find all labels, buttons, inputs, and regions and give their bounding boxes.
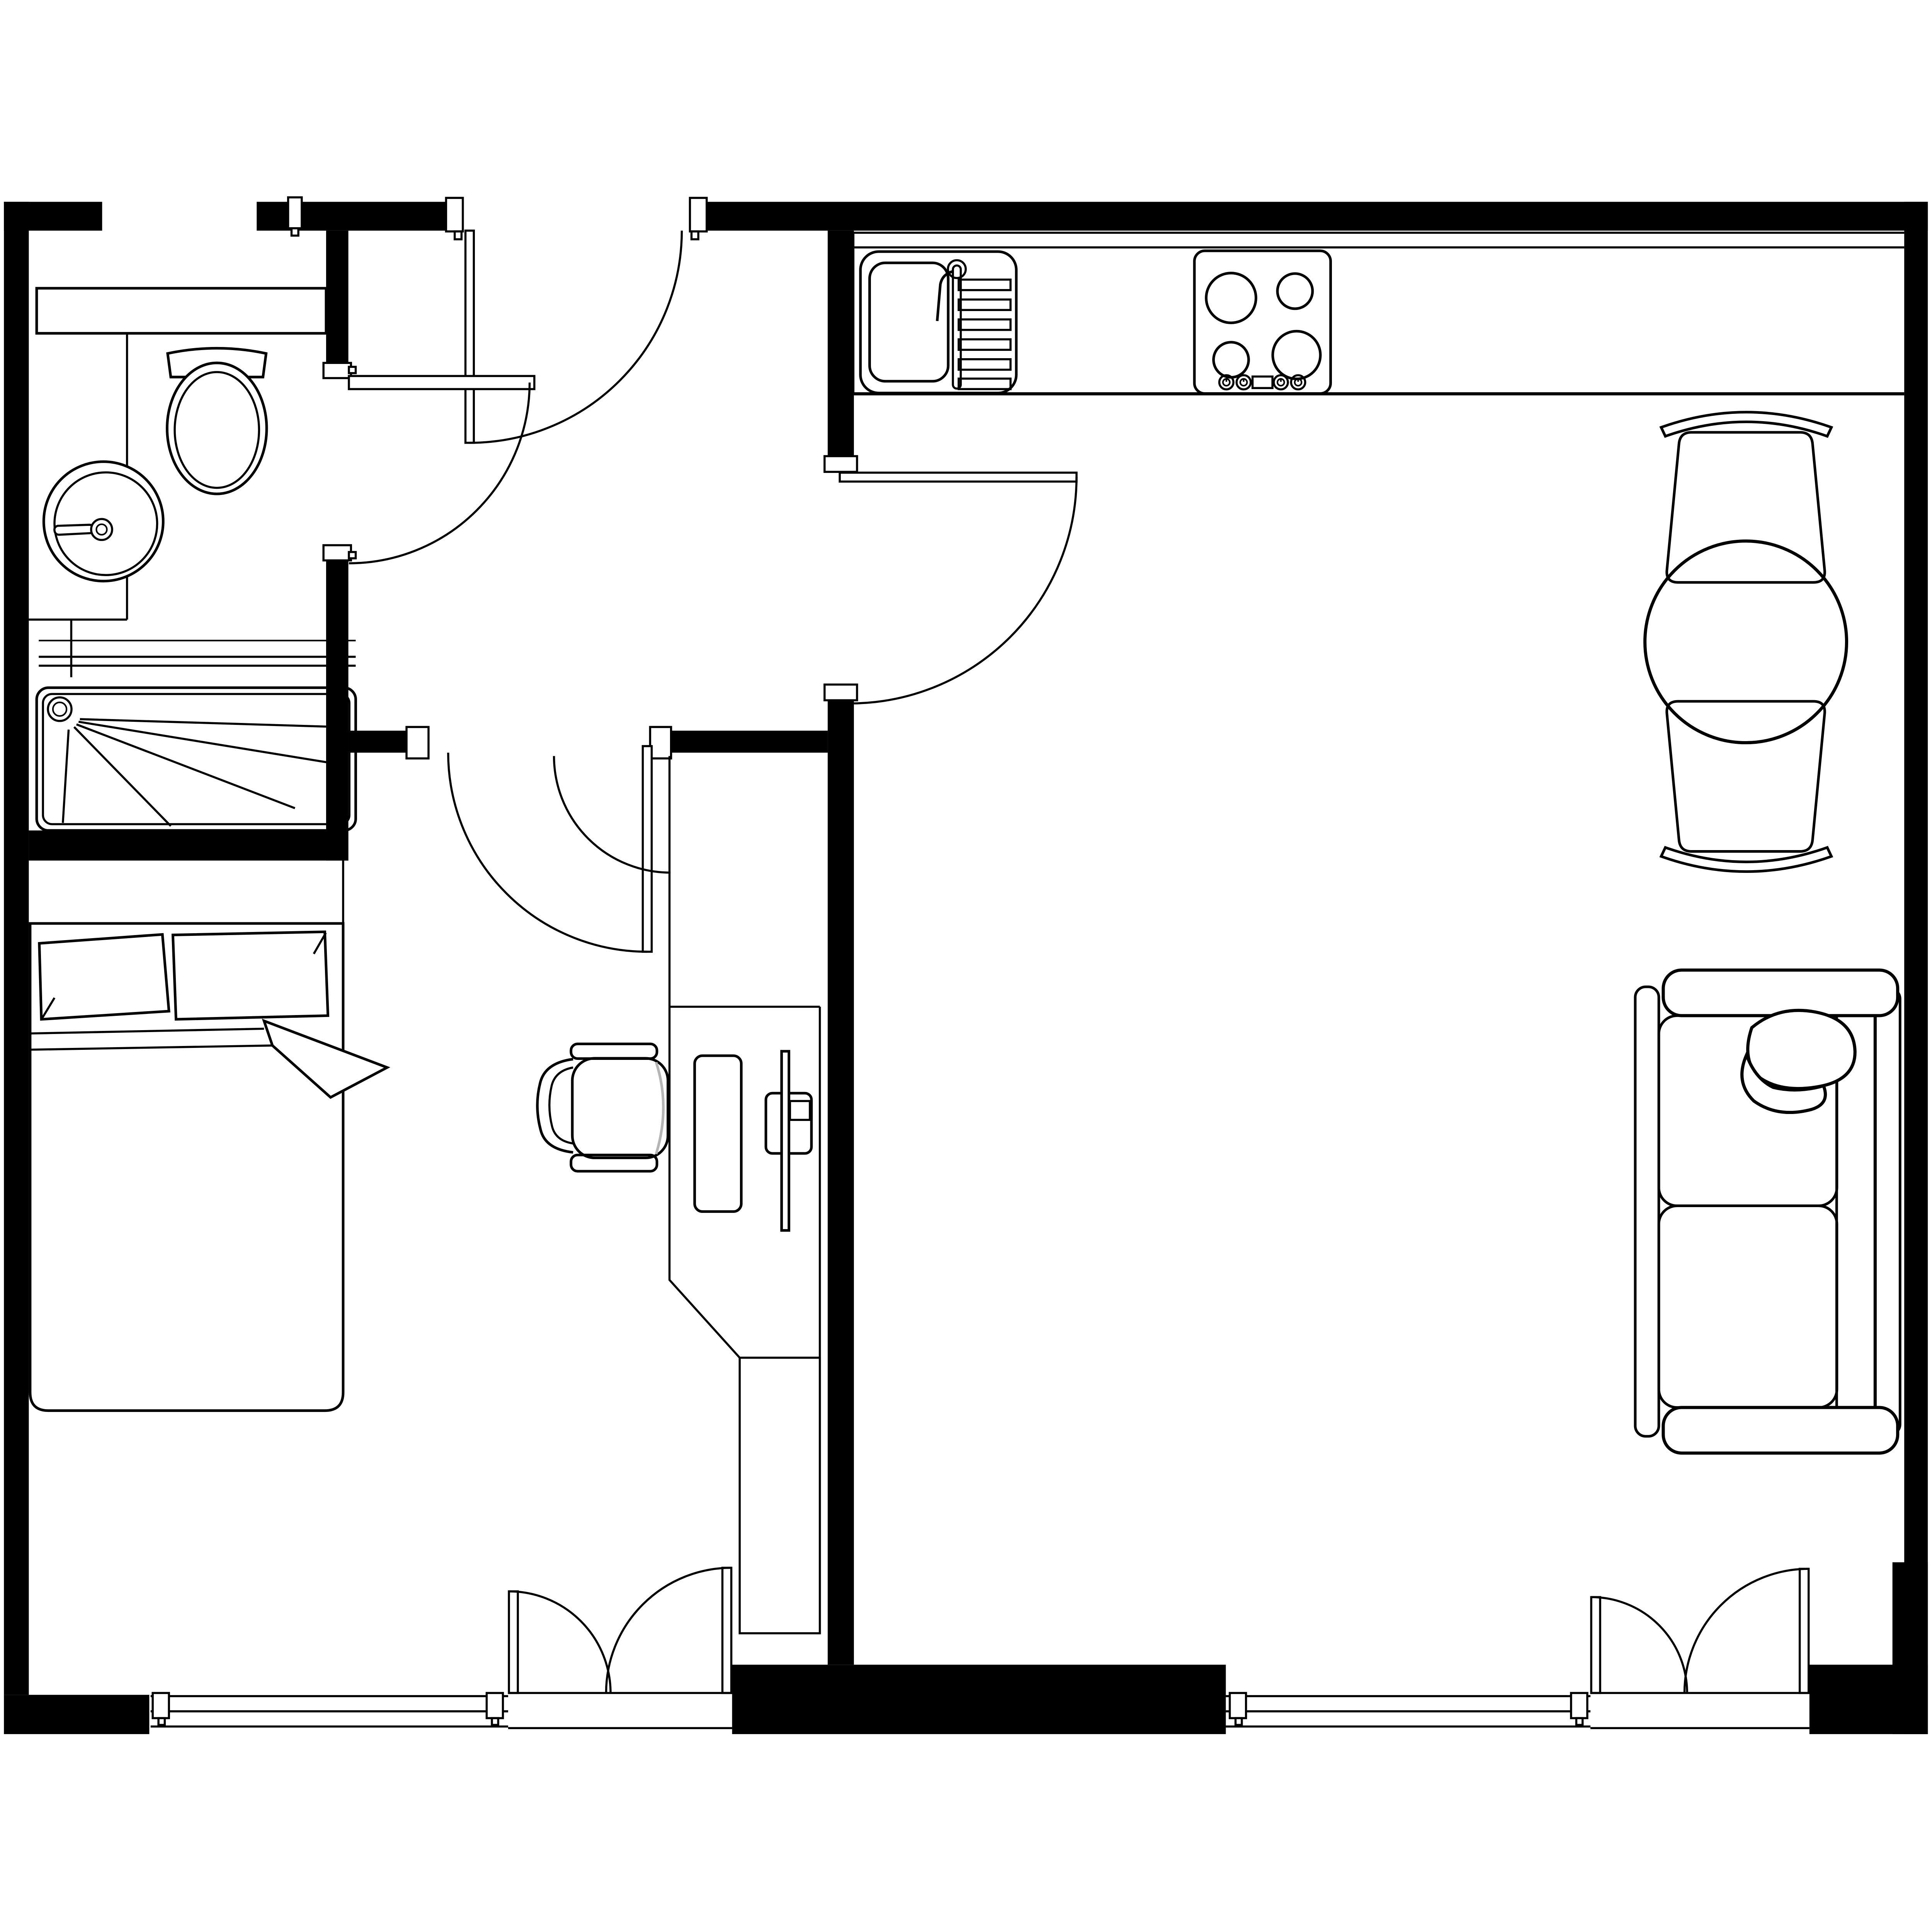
tall-cabinet xyxy=(740,1358,820,1633)
throw-pillow-upper xyxy=(1748,1010,1855,1088)
patio-left-doorA-arc xyxy=(509,1591,611,1693)
bathroom-shelf xyxy=(37,288,326,333)
jamb-bathroom-top-tick xyxy=(349,367,356,373)
wall-corner-bottom-left xyxy=(4,1695,149,1734)
patio-right-doorA-arc xyxy=(1591,1597,1687,1693)
desk-pad xyxy=(695,1056,742,1211)
sofa xyxy=(1635,970,1900,1453)
patio-left-doorB-arc xyxy=(606,1568,731,1693)
wall-left xyxy=(4,202,29,1695)
wall-central-lower xyxy=(828,700,854,1665)
monitor-screen xyxy=(782,1051,789,1231)
jamb-bathroom-top xyxy=(323,363,351,378)
jamb-bedroom-left xyxy=(406,727,429,758)
dining-chair-top-seat xyxy=(1667,432,1825,582)
shower-drain-outer xyxy=(48,697,71,721)
entry-door-leaf xyxy=(466,231,474,443)
pillow-right xyxy=(173,932,328,1019)
wall-top-main xyxy=(707,202,1928,231)
bedroom-door-swing-arc xyxy=(448,753,647,952)
wall-central-upper xyxy=(828,231,854,457)
wall-bottom-right xyxy=(1810,1665,1928,1734)
window-frame-end xyxy=(153,1693,169,1718)
wall-bath-east-upper xyxy=(326,231,349,364)
doors xyxy=(349,231,1810,1728)
wall-bedroom-north-right xyxy=(652,731,828,753)
wall-right xyxy=(1904,202,1928,1734)
dining-table xyxy=(1645,541,1847,743)
monitor-arm-clamp xyxy=(790,1101,810,1120)
window-frame-tick xyxy=(492,1718,498,1725)
window-bottom-left xyxy=(151,1693,508,1726)
window-frame-end xyxy=(1230,1693,1246,1718)
kitchen-faucet-base xyxy=(948,260,966,278)
toilet-bowl-outer xyxy=(167,363,267,494)
patio-left-doorA-leaf xyxy=(509,1591,518,1693)
dining-set xyxy=(1645,412,1847,872)
hob-burner-large-tl xyxy=(1206,273,1256,323)
chair-backrest-outer xyxy=(537,1059,573,1152)
kitchen-drainboard-slats xyxy=(959,280,1010,389)
basin-faucet-base xyxy=(91,519,112,540)
entry-door-swing-arc xyxy=(469,231,682,443)
sofa-armrest-bottom xyxy=(1663,1408,1898,1453)
chair-backrest-inner xyxy=(549,1068,573,1144)
shower-drain-inner xyxy=(53,702,66,716)
hob xyxy=(1194,251,1330,393)
jamb-entry-right xyxy=(690,198,707,231)
jamb-entry-right-tick xyxy=(692,231,699,239)
kitchen-faucet-lever xyxy=(937,271,953,321)
jamb-kitchen-bottom xyxy=(825,685,857,701)
patio-left-doorB-leaf xyxy=(723,1568,731,1693)
jamb-kitchen-top xyxy=(825,456,857,472)
kitchen-door-swing-arc xyxy=(850,477,1077,703)
jamb-top-wall xyxy=(288,197,302,228)
kitchen-door-leaf xyxy=(840,473,1077,481)
floor-plan-canvas xyxy=(0,0,1932,1932)
bedroom-second-swing-arc xyxy=(554,756,671,873)
patio-right-doorB-arc xyxy=(1684,1569,1808,1693)
sofa-left-frame xyxy=(1635,987,1659,1436)
chair-seat xyxy=(572,1058,668,1158)
window-frame-tick xyxy=(1236,1718,1242,1725)
wall-bath-south xyxy=(29,830,349,861)
dining-chair-bottom-seat xyxy=(1667,701,1825,851)
window-frame-end xyxy=(486,1693,503,1718)
patio-right-doorB-leaf xyxy=(1800,1569,1809,1693)
kitchen-sink-basin xyxy=(870,263,948,381)
kitchen xyxy=(854,233,1905,394)
jamb-bathroom-bottom xyxy=(323,545,351,560)
window-bottom-middle xyxy=(1226,1693,1590,1726)
workspace xyxy=(537,1044,811,1231)
door-jamb-markers xyxy=(288,197,857,759)
jamb-entry-left-tick xyxy=(455,231,462,239)
hob-burner-small-bl xyxy=(1214,342,1249,378)
jamb-top-wall-tick xyxy=(291,228,298,236)
basin-faucet-lever xyxy=(54,525,94,535)
floor-plan-page xyxy=(0,0,1932,1932)
bathroom-door-leaf xyxy=(349,376,534,389)
wall-bottom-middle xyxy=(732,1665,1226,1734)
window-frame-tick xyxy=(158,1718,165,1725)
hob-burner-small-tr xyxy=(1277,274,1313,309)
bathroom-door-swing-arc xyxy=(349,383,530,563)
sofa-seat-cushion-bottom xyxy=(1659,1206,1837,1408)
patio-right-doorA-leaf xyxy=(1591,1597,1600,1693)
chair-armrest-top xyxy=(571,1044,657,1059)
window-frame-end xyxy=(1571,1693,1587,1718)
hob-burner-large-br xyxy=(1273,331,1320,379)
pillow-left xyxy=(39,934,169,1019)
sofa-back-frame xyxy=(1875,988,1900,1435)
wall-bath-east-lower xyxy=(326,560,349,861)
window-frame-tick xyxy=(1576,1718,1582,1725)
hob-display xyxy=(1253,376,1273,388)
jamb-bedroom-right xyxy=(650,727,671,758)
partitions-and-desk xyxy=(343,753,820,1633)
chair-seat-overlap-line xyxy=(656,1062,663,1154)
shower-spray-lines xyxy=(63,719,340,826)
bathroom xyxy=(29,288,356,830)
bedroom xyxy=(30,923,387,1411)
bedroom-door-leaf xyxy=(643,746,652,952)
sofa-armrest-top xyxy=(1663,970,1898,1016)
jamb-bathroom-bottom-tick xyxy=(349,552,356,558)
kitchen-sink-unit xyxy=(861,252,1016,393)
jamb-entry-left xyxy=(446,198,463,231)
